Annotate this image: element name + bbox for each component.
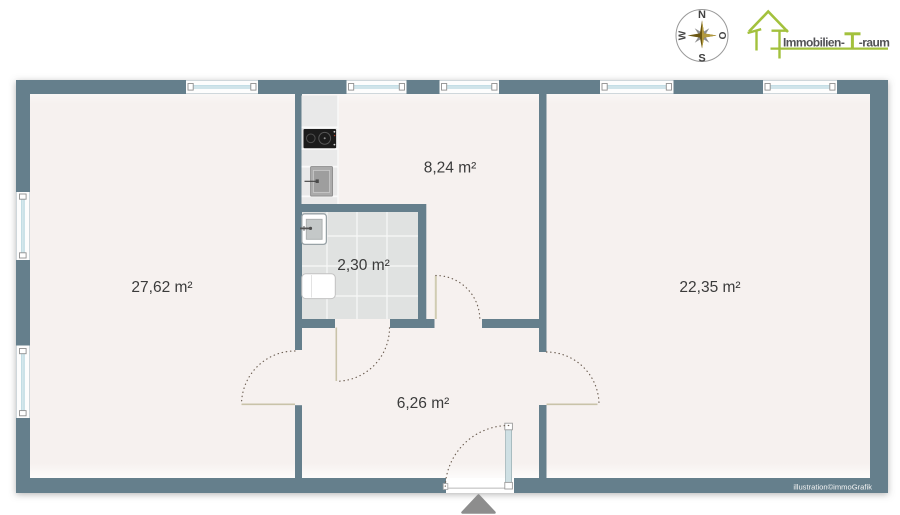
- svg-text:W: W: [678, 30, 689, 40]
- svg-text:8,24 m²: 8,24 m²: [424, 159, 477, 176]
- svg-text:S: S: [698, 53, 705, 65]
- svg-text:N: N: [698, 9, 706, 21]
- svg-text:22,35 m²: 22,35 m²: [679, 279, 740, 296]
- svg-text:Immobilien-: Immobilien-: [783, 35, 845, 49]
- svg-text:27,62 m²: 27,62 m²: [131, 279, 192, 296]
- svg-text:2,30 m²: 2,30 m²: [337, 257, 390, 274]
- svg-text:6,26 m²: 6,26 m²: [397, 395, 450, 412]
- svg-text:O: O: [716, 32, 727, 40]
- svg-text:-raum: -raum: [859, 35, 890, 49]
- svg-text:illustration©immoGrafik: illustration©immoGrafik: [793, 482, 872, 491]
